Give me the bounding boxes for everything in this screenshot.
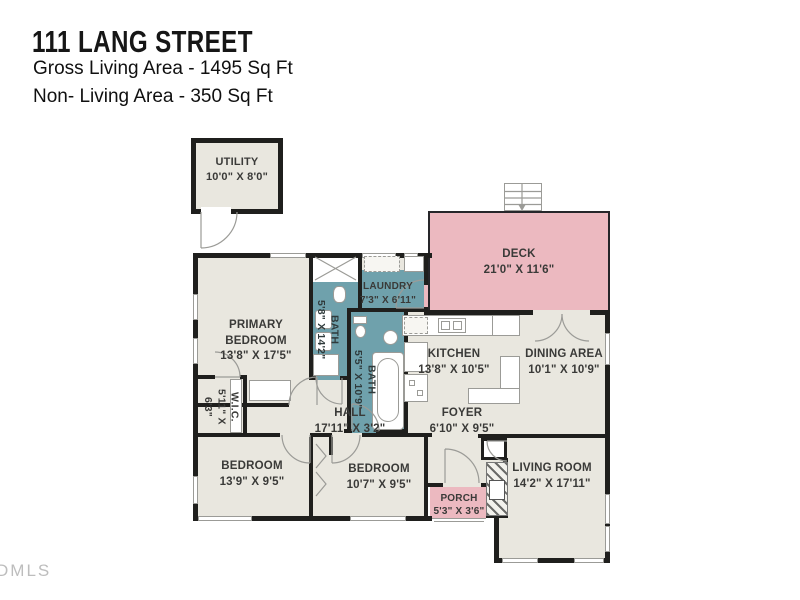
non-living-area-text: Non- Living Area - 350 Sq Ft bbox=[33, 86, 273, 108]
french-door-arc-right bbox=[562, 314, 589, 341]
room-dims: 13'9" X 9'5" bbox=[197, 475, 307, 491]
room-dims: 10'7" X 9'5" bbox=[330, 478, 428, 494]
room-name: BATH bbox=[327, 283, 340, 377]
room-dims: 13'8" X 17'5" bbox=[197, 349, 315, 365]
door-arc-utility bbox=[201, 212, 237, 248]
room-label-living-room: LIVING ROOM 14'2" X 17'11" bbox=[498, 461, 606, 492]
french-door-arc-left bbox=[535, 314, 562, 341]
room-label-hall: HALL 17'11" X 3'2" bbox=[310, 406, 390, 437]
door-arc-bedroom2 bbox=[332, 435, 360, 463]
watermark: DMLS bbox=[0, 561, 51, 581]
room-name: KITCHEN bbox=[400, 347, 508, 363]
room-name: LIVING ROOM bbox=[498, 461, 606, 477]
room-dims: 10'0" X 8'0" bbox=[193, 170, 281, 185]
room-label-bath1: BATH 5'8" X 14'2" bbox=[314, 283, 340, 377]
room-dims: 7'3" X 6'11" bbox=[348, 294, 428, 308]
room-label-dining-area: DINING AREA 10'1" X 10'9" bbox=[519, 347, 609, 378]
room-dims: 17'11" X 3'2" bbox=[310, 422, 390, 438]
room-label-deck: DECK 21'0" X 11'6" bbox=[429, 247, 609, 278]
room-name: PRIMARY BEDROOM bbox=[197, 318, 315, 349]
stair-direction-arrow bbox=[518, 204, 526, 211]
room-label-bedroom1: BEDROOM 13'9" X 9'5" bbox=[197, 459, 307, 490]
room-dims: 13'8" X 10'5" bbox=[400, 363, 508, 379]
door-arc-primary-bedroom bbox=[289, 377, 317, 405]
stair-treads bbox=[504, 184, 542, 206]
room-name: PORCH bbox=[428, 492, 490, 505]
room-label-laundry: LAUNDRY 7'3" X 6'11" bbox=[348, 280, 428, 307]
room-dims: 6'10" X 9'5" bbox=[420, 422, 504, 438]
room-name: HALL bbox=[310, 406, 390, 422]
room-label-primary-bedroom: PRIMARY BEDROOM 13'8" X 17'5" bbox=[197, 318, 315, 365]
door-arc-bath1 bbox=[316, 378, 342, 404]
room-name: UTILITY bbox=[193, 155, 281, 170]
room-dims: 5'3" X 3'6" bbox=[428, 505, 490, 518]
room-name: W.I.C. bbox=[227, 381, 240, 433]
door-arc-coat-closet bbox=[487, 441, 507, 461]
room-label-wic: W.I.C. 5'11" X 6'3" bbox=[201, 381, 240, 433]
bifold-door-zigzag bbox=[316, 444, 326, 468]
room-label-porch: PORCH 5'3" X 3'6" bbox=[428, 492, 490, 518]
room-label-utility: UTILITY 10'0" X 8'0" bbox=[193, 155, 281, 185]
room-name: BEDROOM bbox=[197, 459, 307, 475]
room-name: DECK bbox=[429, 247, 609, 263]
room-dims: 14'2" X 17'11" bbox=[498, 477, 606, 493]
room-label-foyer: FOYER 6'10" X 9'5" bbox=[420, 406, 504, 437]
bifold-door-zigzag bbox=[316, 472, 326, 496]
floorplan-canvas: 111 LANG STREET Gross Living Area - 1495… bbox=[0, 0, 800, 600]
room-label-kitchen: KITCHEN 13'8" X 10'5" bbox=[400, 347, 508, 378]
room-name: BEDROOM bbox=[330, 462, 428, 478]
door-arc-front-entry bbox=[445, 449, 479, 483]
gross-living-area-text: Gross Living Area - 1495 Sq Ft bbox=[33, 58, 293, 80]
linen-closet-x bbox=[315, 257, 356, 280]
room-name: DINING AREA bbox=[519, 347, 609, 363]
room-dims: 5'8" X 14'2" bbox=[314, 283, 327, 377]
room-dims: 21'0" X 11'6" bbox=[429, 263, 609, 279]
room-dims: 5'11" X 6'3" bbox=[201, 381, 227, 433]
room-dims: 10'1" X 10'9" bbox=[519, 363, 609, 379]
room-name: FOYER bbox=[420, 406, 504, 422]
room-label-bedroom2: BEDROOM 10'7" X 9'5" bbox=[330, 462, 428, 493]
room-name: LAUNDRY bbox=[348, 280, 428, 294]
page-title: 111 LANG STREET bbox=[32, 24, 253, 60]
